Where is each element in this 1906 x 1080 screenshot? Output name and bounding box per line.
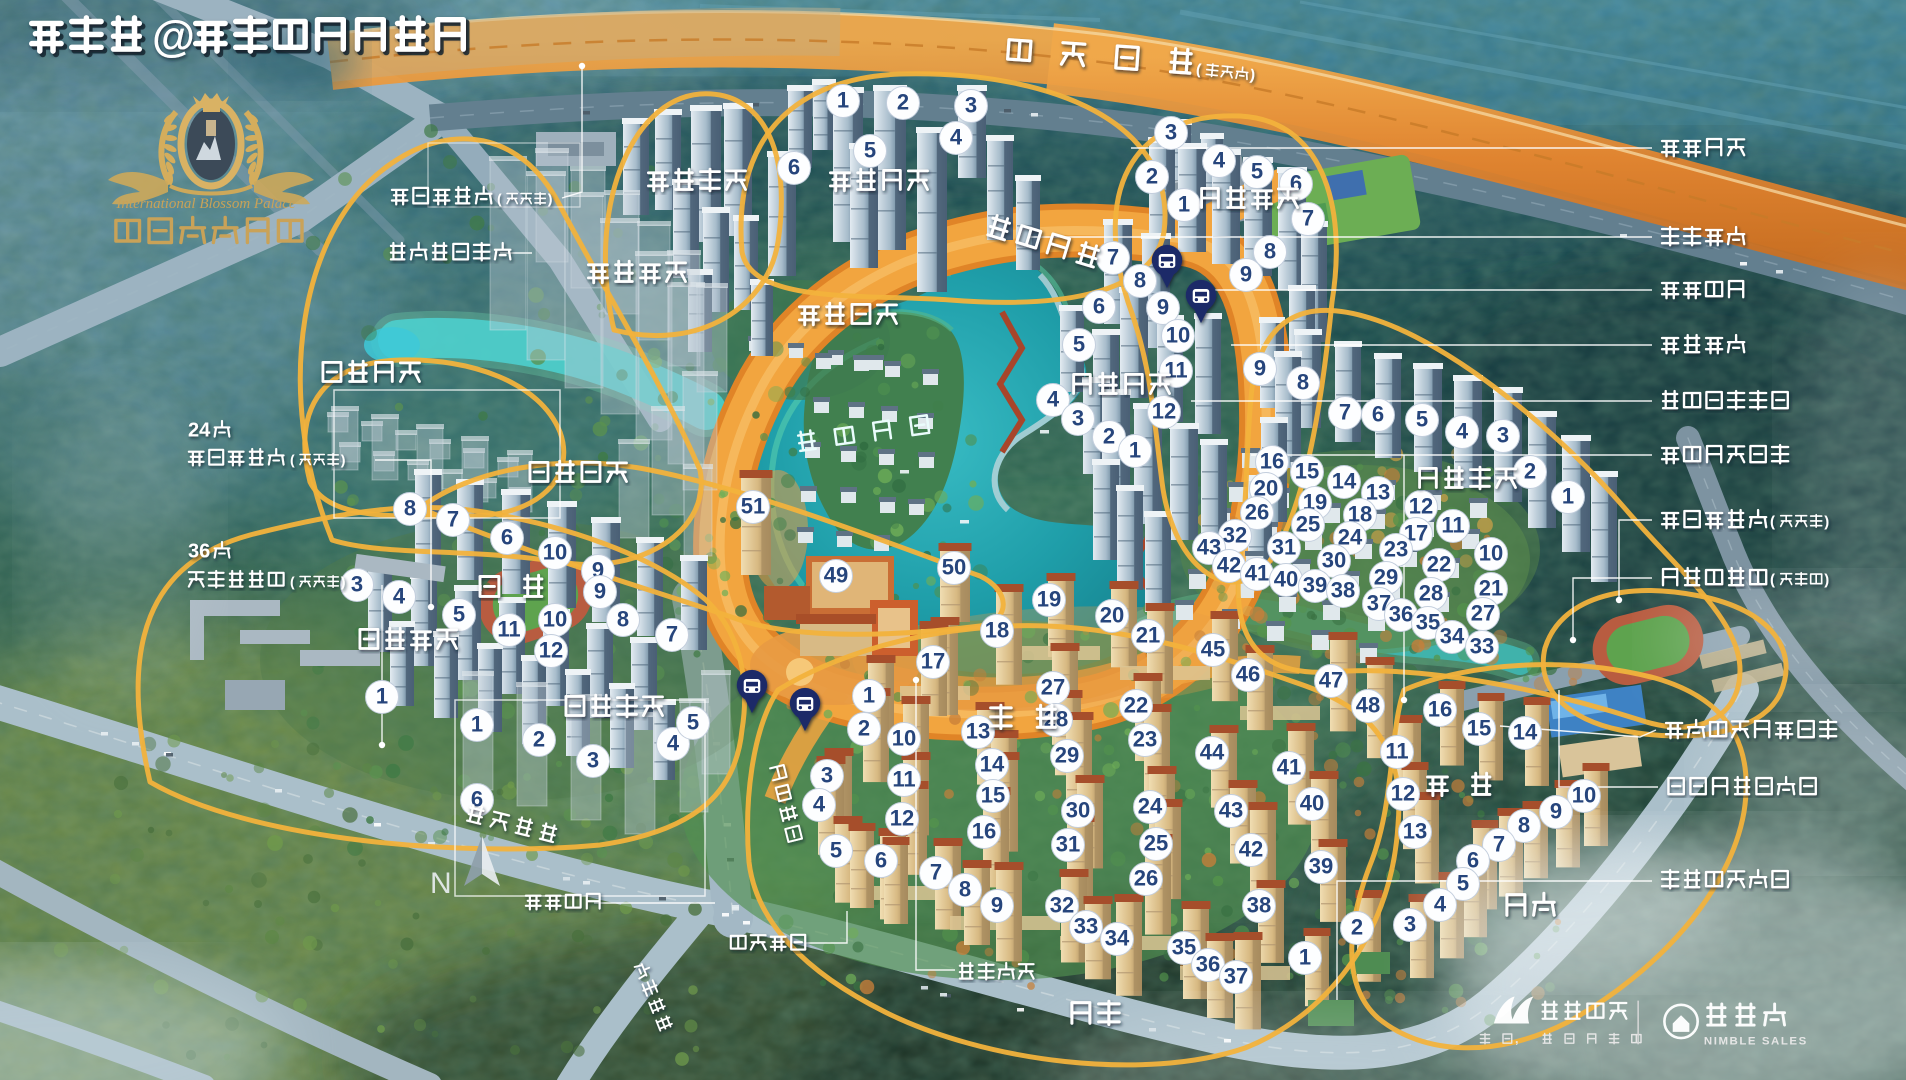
svg-text:2: 2 (897, 89, 909, 114)
svg-text:23: 23 (1133, 726, 1157, 751)
svg-text:47: 47 (1319, 667, 1343, 692)
svg-text:2: 2 (1146, 163, 1158, 188)
svg-text:6: 6 (788, 154, 800, 179)
svg-text:32: 32 (1223, 522, 1247, 547)
svg-text:51: 51 (741, 493, 765, 518)
svg-text:22: 22 (1124, 692, 1148, 717)
svg-text:48: 48 (1356, 692, 1380, 717)
svg-text:7: 7 (447, 506, 459, 531)
svg-text:39: 39 (1303, 572, 1327, 597)
svg-text:4: 4 (1456, 418, 1469, 443)
svg-text:36: 36 (1389, 601, 1413, 626)
svg-text:15: 15 (981, 782, 1005, 807)
svg-text:23: 23 (1384, 536, 1408, 561)
svg-text:31: 31 (1056, 831, 1080, 856)
svg-text:4: 4 (950, 124, 963, 149)
svg-text:6: 6 (875, 847, 887, 872)
svg-text:41: 41 (1245, 560, 1269, 585)
svg-text:16: 16 (972, 818, 996, 843)
svg-text:25: 25 (1144, 830, 1168, 855)
svg-text:8: 8 (404, 495, 416, 520)
svg-text:46: 46 (1236, 661, 1260, 686)
svg-text:2: 2 (858, 715, 870, 740)
svg-text:7: 7 (930, 859, 942, 884)
svg-text:33: 33 (1074, 913, 1098, 938)
svg-text:24: 24 (1338, 524, 1363, 549)
svg-text:7: 7 (1302, 205, 1314, 230)
svg-text:12: 12 (890, 805, 914, 830)
svg-text:10: 10 (1572, 782, 1596, 807)
svg-text:3: 3 (1404, 911, 1416, 936)
svg-text:49: 49 (824, 562, 848, 587)
svg-text:4: 4 (393, 583, 406, 608)
svg-text:34: 34 (1440, 623, 1465, 648)
svg-text:27: 27 (1471, 600, 1495, 625)
svg-text:45: 45 (1201, 636, 1225, 661)
svg-text:8: 8 (1134, 267, 1146, 292)
svg-text:37: 37 (1224, 963, 1248, 988)
svg-text:38: 38 (1331, 577, 1355, 602)
svg-text:2: 2 (533, 726, 545, 751)
svg-text:4: 4 (813, 791, 826, 816)
svg-text:12: 12 (1391, 780, 1415, 805)
svg-text:(: ( (290, 574, 295, 590)
svg-text:3: 3 (965, 92, 977, 117)
svg-text:18: 18 (985, 617, 1009, 642)
svg-text:2: 2 (1351, 914, 1363, 939)
svg-text:(: ( (1770, 571, 1775, 588)
svg-text:5: 5 (830, 837, 842, 862)
svg-text:30: 30 (1322, 547, 1346, 572)
svg-text:50: 50 (942, 554, 966, 579)
svg-text:8: 8 (959, 876, 971, 901)
svg-text:1: 1 (1129, 437, 1141, 462)
svg-text:36: 36 (1196, 951, 1220, 976)
svg-text:42: 42 (1239, 836, 1263, 861)
svg-text:3: 3 (821, 762, 833, 787)
svg-text:17: 17 (921, 648, 945, 673)
svg-text:5: 5 (1457, 870, 1469, 895)
svg-text:2: 2 (1103, 423, 1115, 448)
svg-text:33: 33 (1470, 633, 1494, 658)
svg-text:15: 15 (1467, 715, 1491, 740)
svg-text:3: 3 (1497, 422, 1509, 447)
svg-text:1: 1 (863, 682, 875, 707)
svg-text:7: 7 (1493, 831, 1505, 856)
svg-text:16: 16 (1428, 696, 1452, 721)
svg-text:1: 1 (1562, 483, 1574, 508)
svg-text:11: 11 (1385, 738, 1408, 763)
svg-text:(: ( (1770, 513, 1775, 530)
svg-text:NIMBLE SALES: NIMBLE SALES (1704, 1035, 1808, 1047)
svg-text:12: 12 (539, 637, 563, 662)
svg-text:4: 4 (1434, 891, 1447, 916)
svg-text:(: ( (497, 191, 502, 207)
svg-text:1: 1 (1299, 944, 1311, 969)
svg-text:20: 20 (1100, 602, 1124, 627)
svg-text:4: 4 (667, 730, 680, 755)
svg-text:6: 6 (1290, 170, 1302, 195)
svg-text:6: 6 (1093, 293, 1105, 318)
svg-text:9: 9 (991, 892, 1003, 917)
svg-text:43: 43 (1219, 797, 1243, 822)
svg-text:11: 11 (892, 766, 915, 791)
svg-text:International Blossom Palace: International Blossom Palace (115, 196, 295, 212)
svg-text:N: N (430, 867, 452, 900)
svg-text:27: 27 (1041, 674, 1065, 699)
svg-text:10: 10 (543, 606, 567, 631)
svg-text:7: 7 (1339, 399, 1351, 424)
svg-text:3: 3 (1165, 119, 1177, 144)
svg-text:40: 40 (1274, 566, 1298, 591)
svg-text:38: 38 (1247, 892, 1271, 917)
svg-text:3: 3 (587, 747, 599, 772)
svg-text:8: 8 (1297, 369, 1309, 394)
svg-text:34: 34 (1105, 925, 1130, 950)
svg-text:26: 26 (1134, 865, 1158, 890)
svg-text:12: 12 (1152, 398, 1176, 423)
svg-text:1: 1 (837, 87, 849, 112)
svg-text:4: 4 (1213, 147, 1226, 172)
svg-text:5: 5 (1416, 406, 1428, 431)
svg-text:): ) (1824, 513, 1829, 530)
svg-text:31: 31 (1272, 534, 1296, 559)
svg-text:8: 8 (1264, 238, 1276, 263)
svg-text:): ) (548, 191, 553, 207)
svg-text:1: 1 (471, 711, 483, 736)
svg-text:): ) (1824, 571, 1829, 588)
svg-text:12: 12 (1409, 493, 1433, 518)
svg-text:8: 8 (1518, 812, 1530, 837)
svg-text:19: 19 (1037, 586, 1061, 611)
svg-text:1: 1 (376, 683, 388, 708)
svg-text:1: 1 (1178, 191, 1190, 216)
svg-text:7: 7 (666, 621, 678, 646)
svg-text:9: 9 (1240, 261, 1252, 286)
svg-text:14: 14 (1332, 468, 1357, 493)
svg-text:13: 13 (966, 718, 990, 743)
svg-text:7: 7 (1107, 244, 1119, 269)
svg-text:4: 4 (1047, 386, 1060, 411)
svg-text:21: 21 (1479, 575, 1503, 600)
svg-text:39: 39 (1309, 853, 1333, 878)
svg-text:41: 41 (1277, 754, 1301, 779)
svg-text:36: 36 (188, 540, 210, 562)
svg-text:5: 5 (864, 137, 876, 162)
svg-text:15: 15 (1295, 458, 1319, 483)
svg-text:6: 6 (1372, 401, 1384, 426)
svg-text:32: 32 (1050, 892, 1074, 917)
svg-text:13: 13 (1403, 818, 1427, 843)
svg-text:2: 2 (1524, 458, 1536, 483)
svg-text:10: 10 (1479, 540, 1503, 565)
svg-text:5: 5 (687, 709, 699, 734)
svg-text:14: 14 (1513, 719, 1538, 744)
svg-text:5: 5 (1251, 158, 1263, 183)
svg-text:(: ( (290, 452, 295, 468)
svg-text:6: 6 (501, 524, 513, 549)
svg-text:3: 3 (351, 571, 363, 596)
svg-text:10: 10 (892, 725, 916, 750)
svg-text:24: 24 (1138, 793, 1163, 818)
svg-text:44: 44 (1200, 739, 1225, 764)
svg-text:5: 5 (1073, 331, 1085, 356)
svg-text:29: 29 (1374, 564, 1398, 589)
svg-text:9: 9 (1157, 294, 1169, 319)
svg-text:11: 11 (1441, 512, 1464, 537)
svg-text:30: 30 (1066, 797, 1090, 822)
svg-text:): ) (341, 574, 346, 590)
svg-text:16: 16 (1260, 448, 1284, 473)
svg-text:10: 10 (1166, 322, 1190, 347)
svg-text:21: 21 (1136, 622, 1160, 647)
svg-text:9: 9 (1550, 798, 1562, 823)
svg-text:8: 8 (617, 606, 629, 631)
svg-text:9: 9 (594, 578, 606, 603)
svg-text:11: 11 (497, 616, 520, 641)
svg-text:@: @ (152, 12, 195, 61)
svg-text:,: , (1515, 1032, 1518, 1046)
svg-text:5: 5 (453, 601, 465, 626)
svg-text:24: 24 (188, 419, 211, 441)
svg-text:29: 29 (1055, 742, 1079, 767)
svg-text:11: 11 (1164, 357, 1187, 382)
svg-text:40: 40 (1300, 790, 1324, 815)
svg-text:14: 14 (980, 751, 1005, 776)
svg-text:22: 22 (1427, 551, 1451, 576)
svg-text:9: 9 (1254, 355, 1266, 380)
svg-text:3: 3 (1072, 405, 1084, 430)
svg-text:25: 25 (1296, 511, 1320, 536)
svg-text:10: 10 (543, 539, 567, 564)
svg-text:): ) (341, 452, 346, 468)
svg-text:35: 35 (1172, 934, 1196, 959)
svg-text:26: 26 (1245, 499, 1269, 524)
svg-text:42: 42 (1217, 552, 1241, 577)
svg-text:28: 28 (1419, 580, 1443, 605)
